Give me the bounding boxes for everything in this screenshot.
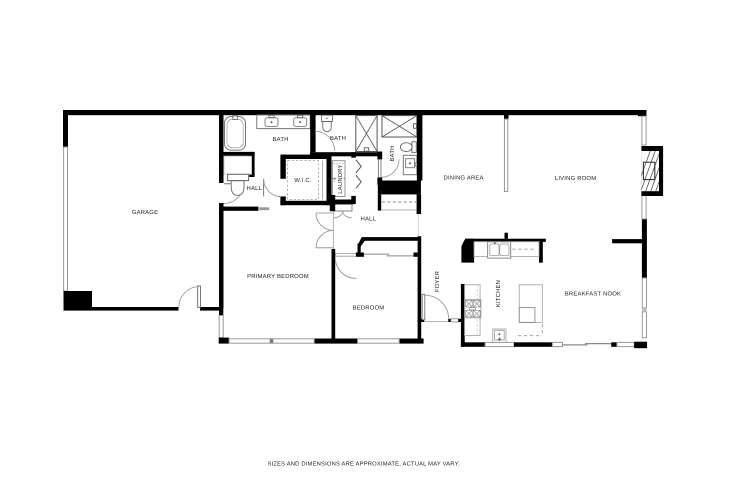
svg-text:HALL: HALL [247, 185, 263, 192]
svg-text:BEDROOM: BEDROOM [353, 304, 385, 311]
svg-text:GARAGE: GARAGE [132, 209, 158, 216]
svg-text:W.I.C.: W.I.C. [294, 177, 311, 184]
svg-text:LAUNDRY: LAUNDRY [337, 164, 344, 193]
svg-text:HALL: HALL [361, 216, 377, 223]
svg-text:LIVING ROOM: LIVING ROOM [555, 175, 596, 182]
svg-text:BATH: BATH [330, 135, 346, 142]
svg-text:BATH: BATH [273, 136, 289, 143]
svg-text:KITCHEN: KITCHEN [495, 280, 502, 307]
svg-text:BREAKFAST NOOK: BREAKFAST NOOK [565, 291, 621, 298]
svg-text:FOYER: FOYER [434, 271, 441, 292]
svg-text:SIZES AND DIMENSIONS ARE APPRO: SIZES AND DIMENSIONS ARE APPROXIMATE, AC… [267, 461, 459, 468]
svg-text:DINING AREA: DINING AREA [444, 175, 484, 182]
svg-text:PRIMARY BEDROOM: PRIMARY BEDROOM [247, 273, 309, 280]
svg-text:BATH: BATH [389, 145, 396, 161]
